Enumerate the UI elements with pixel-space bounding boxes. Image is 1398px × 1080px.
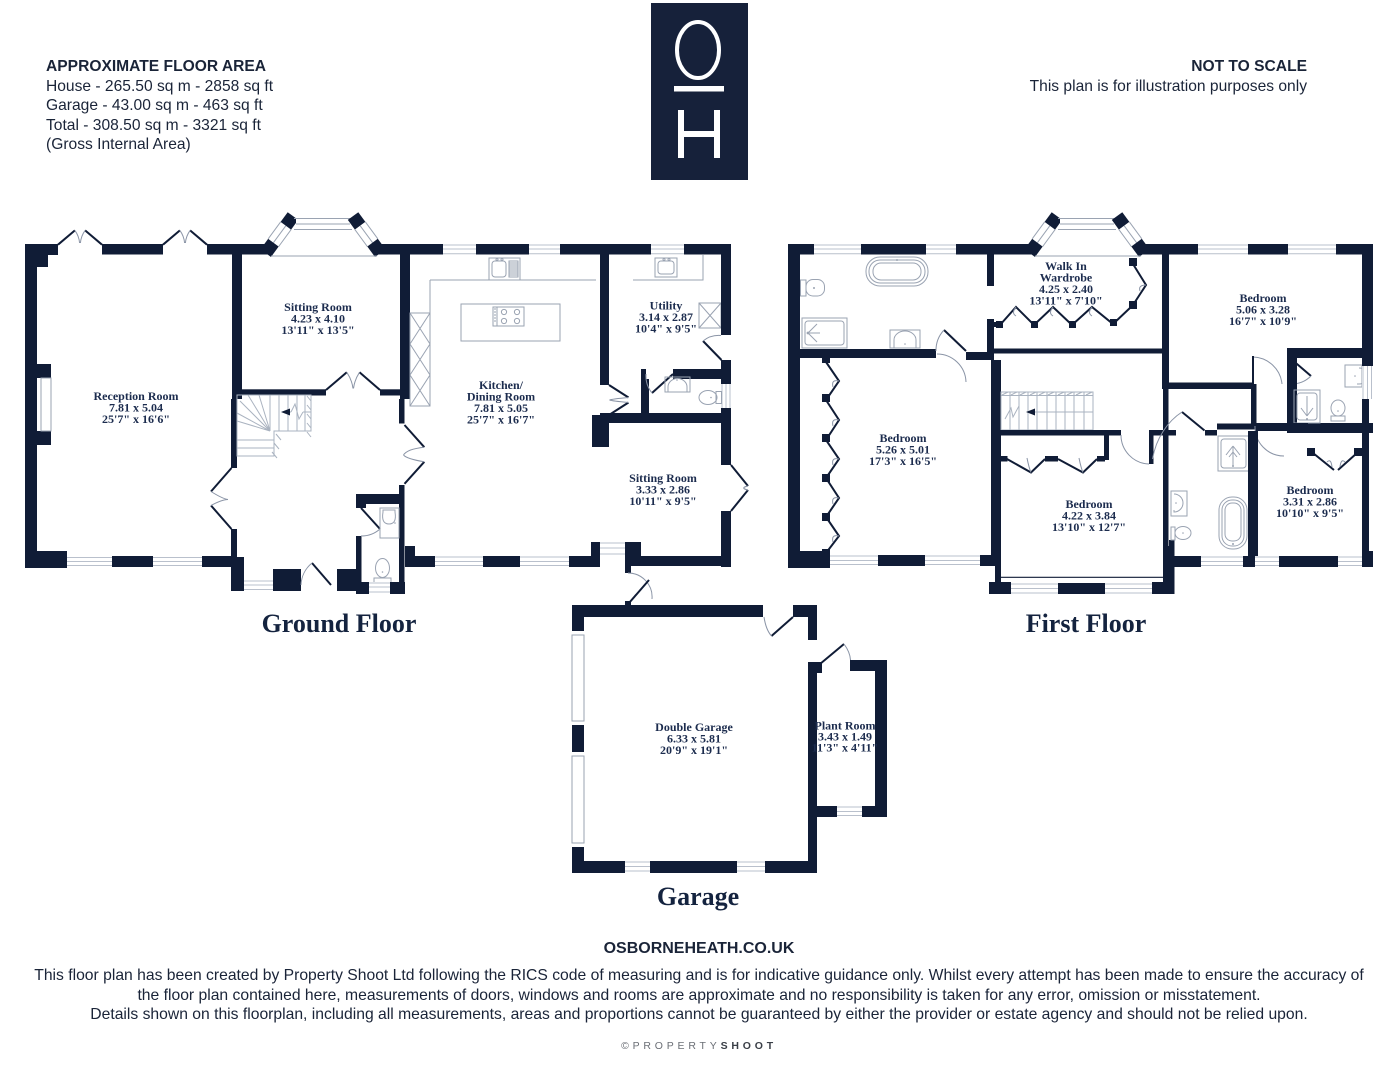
svg-text:20'9" x 19'1": 20'9" x 19'1" bbox=[660, 743, 728, 757]
svg-text:16'7" x 10'9": 16'7" x 10'9" bbox=[1229, 314, 1297, 328]
svg-text:10'10" x 9'5": 10'10" x 9'5" bbox=[1276, 506, 1344, 520]
svg-text:13'10" x 12'7": 13'10" x 12'7" bbox=[1052, 520, 1126, 534]
svg-text:25'7" x 16'6": 25'7" x 16'6" bbox=[102, 412, 170, 426]
svg-text:Garage: Garage bbox=[657, 882, 739, 911]
svg-text:17'3" x 16'5": 17'3" x 16'5" bbox=[869, 454, 937, 468]
svg-text:25'7" x 16'7": 25'7" x 16'7" bbox=[467, 413, 535, 427]
svg-text:13'11" x 13'5": 13'11" x 13'5" bbox=[281, 323, 354, 337]
svg-text:10'4" x 9'5": 10'4" x 9'5" bbox=[635, 322, 697, 336]
svg-text:13'11" x 7'10": 13'11" x 7'10" bbox=[1029, 294, 1102, 308]
svg-text:First Floor: First Floor bbox=[1026, 609, 1147, 638]
svg-text:Ground Floor: Ground Floor bbox=[262, 609, 417, 638]
svg-text:10'11" x 9'5": 10'11" x 9'5" bbox=[629, 494, 696, 508]
svg-text:11'3" x 4'11": 11'3" x 4'11" bbox=[812, 741, 879, 755]
